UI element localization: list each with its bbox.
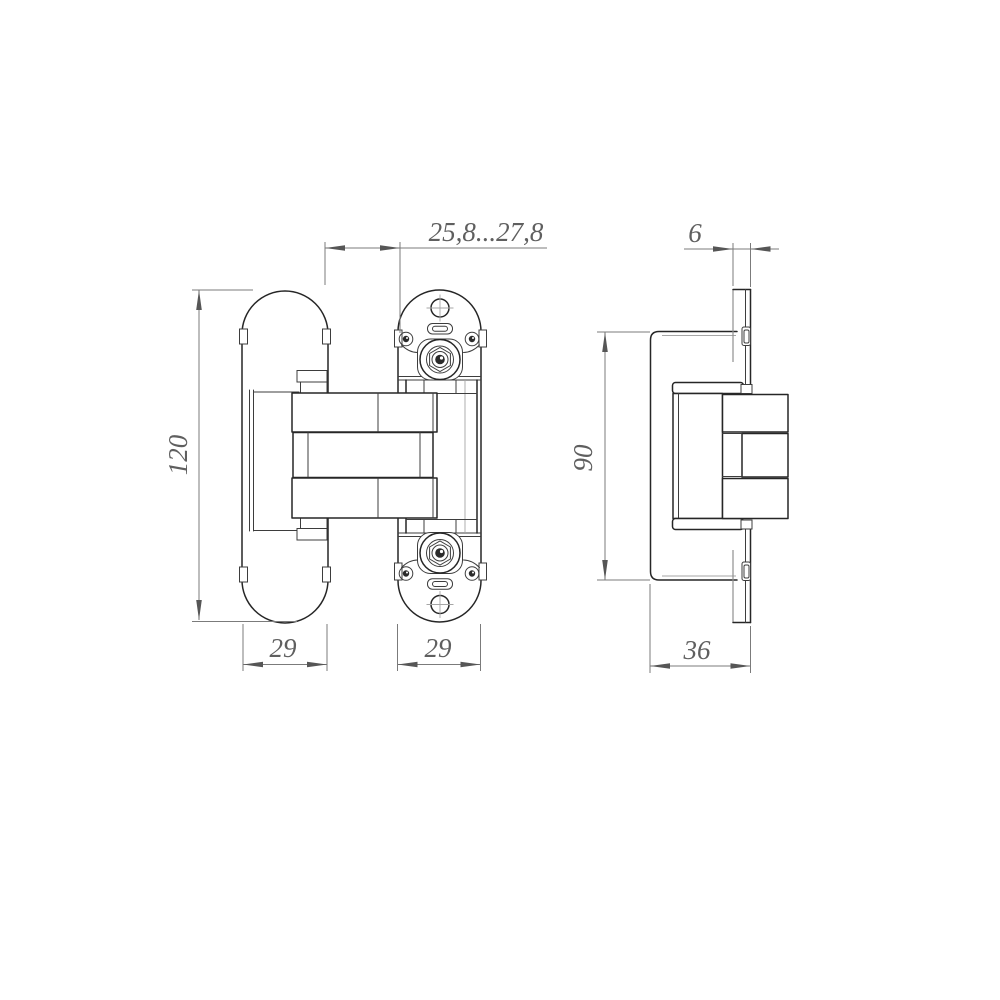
middle-link-arm	[293, 433, 433, 478]
dimension-mortise-height: 90	[568, 332, 650, 580]
edge-notch	[240, 567, 248, 582]
link-block-bottom	[723, 479, 789, 519]
dim-overall-depth-label: 36	[683, 635, 712, 665]
edge-notch	[479, 330, 487, 347]
body-bottom-cap	[673, 519, 744, 530]
drawing-canvas: 120 25,8...27,8 29 29	[0, 0, 1000, 1000]
adjustment-slot	[428, 579, 453, 590]
dimension-overall-depth: 36	[650, 584, 751, 673]
front-view: 120 25,8...27,8 29 29	[163, 217, 547, 671]
dim-gap-width-label: 25,8...27,8	[429, 217, 544, 247]
hinge-body-side	[673, 383, 789, 530]
dim-plate-thickness-label: 6	[688, 218, 702, 248]
arm-mount-step	[301, 382, 328, 393]
link-block-top	[723, 395, 789, 433]
edge-notch	[240, 329, 248, 344]
body-column	[673, 394, 723, 519]
adjustment-slot	[428, 324, 453, 335]
bottom-link-arm	[292, 478, 437, 518]
linkage-arms	[292, 393, 437, 518]
dimension-left-plate-width: 29	[243, 624, 327, 671]
edge-notch	[395, 330, 403, 347]
arm-mount-step	[301, 518, 328, 529]
dim-left-plate-width-label: 29	[270, 633, 298, 663]
dimension-right-plate-width: 29	[398, 624, 481, 671]
hinge-technical-drawing: 120 25,8...27,8 29 29	[0, 0, 1000, 1000]
edge-notch	[479, 563, 487, 580]
dimension-plate-thickness: 6	[684, 218, 779, 287]
side-view: 6 90 36	[568, 218, 788, 673]
top-link-arm	[292, 393, 437, 432]
edge-notch	[323, 567, 331, 582]
dim-overall-height-label: 120	[163, 434, 193, 475]
frame-plate-top	[733, 290, 751, 385]
arm-mount-step	[297, 371, 327, 383]
dim-right-plate-width-label: 29	[425, 633, 453, 663]
body-top-cap	[673, 383, 744, 394]
link-block-middle	[742, 434, 788, 478]
edge-notch	[323, 329, 331, 344]
arm-mount-step	[297, 529, 327, 541]
dim-mortise-height-label: 90	[568, 444, 598, 472]
